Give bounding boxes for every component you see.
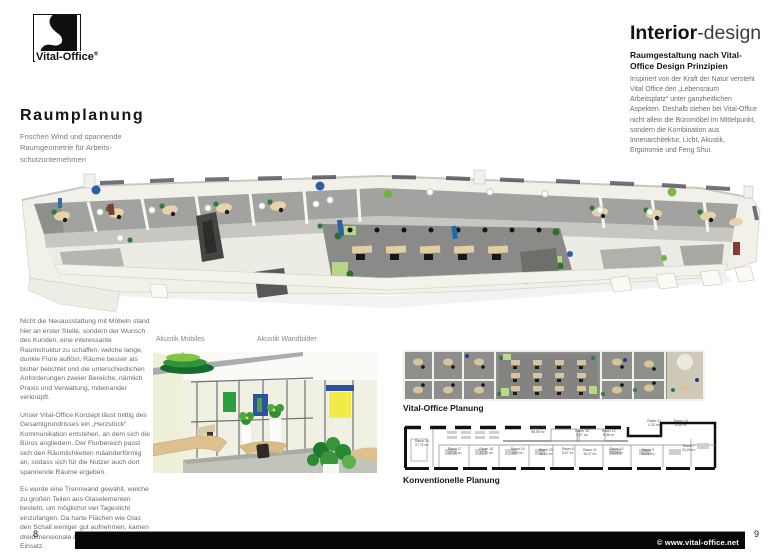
paragraph-2: Unser Vital-Office Konzept lässt mittig … <box>20 411 151 478</box>
footer-bar: © www.vital-office.net <box>75 531 745 549</box>
interior-body-text: Inspiriert von der Kraft der Natur verst… <box>630 75 757 156</box>
logo-registered-mark: ® <box>94 51 98 57</box>
logo-wordmark: Vital-Office® <box>35 51 99 63</box>
brochure-spread: { "brand": { "name": "Vital-Office", "re… <box>0 0 768 549</box>
page-title-raumplanung: Raumplanung <box>20 107 144 125</box>
page-title-interior-design: Interior-design <box>630 22 761 45</box>
caption-akustik-wandbilder: Akustik Wandbilder <box>257 336 317 343</box>
paragraph-1: Nicht die Neuausstattung mit Möbeln stan… <box>20 317 151 403</box>
floorplan-3d-image <box>0 166 768 328</box>
raumplanung-subtitle: Frischen Wind und spannende Raumgeometri… <box>20 131 160 165</box>
interior-title-light: -design <box>697 22 761 44</box>
conventional-plan-image <box>403 419 717 472</box>
interior-title-strong: Interior <box>630 22 697 44</box>
footer-copyright: © www.vital-office.net <box>657 538 739 547</box>
body-text-column: Nicht die Neuausstattung mit Möbeln stan… <box>20 317 151 560</box>
page-number-left: 8 <box>33 529 38 539</box>
vital-office-plan-image <box>403 350 705 401</box>
page-number-right: 9 <box>754 529 759 539</box>
caption-akustik-mobiles: Akustik Mobiles <box>156 336 205 343</box>
interior-rendering-image <box>153 352 377 473</box>
logo-brand-name: Vital-Office <box>36 51 94 63</box>
interior-subheading: Raumgestaltung nach Vital-Office Design … <box>630 50 757 73</box>
label-konventionelle-planung: Konventionelle Planung <box>403 475 500 485</box>
label-vital-office-planung: Vital-Office Planung <box>403 403 484 413</box>
